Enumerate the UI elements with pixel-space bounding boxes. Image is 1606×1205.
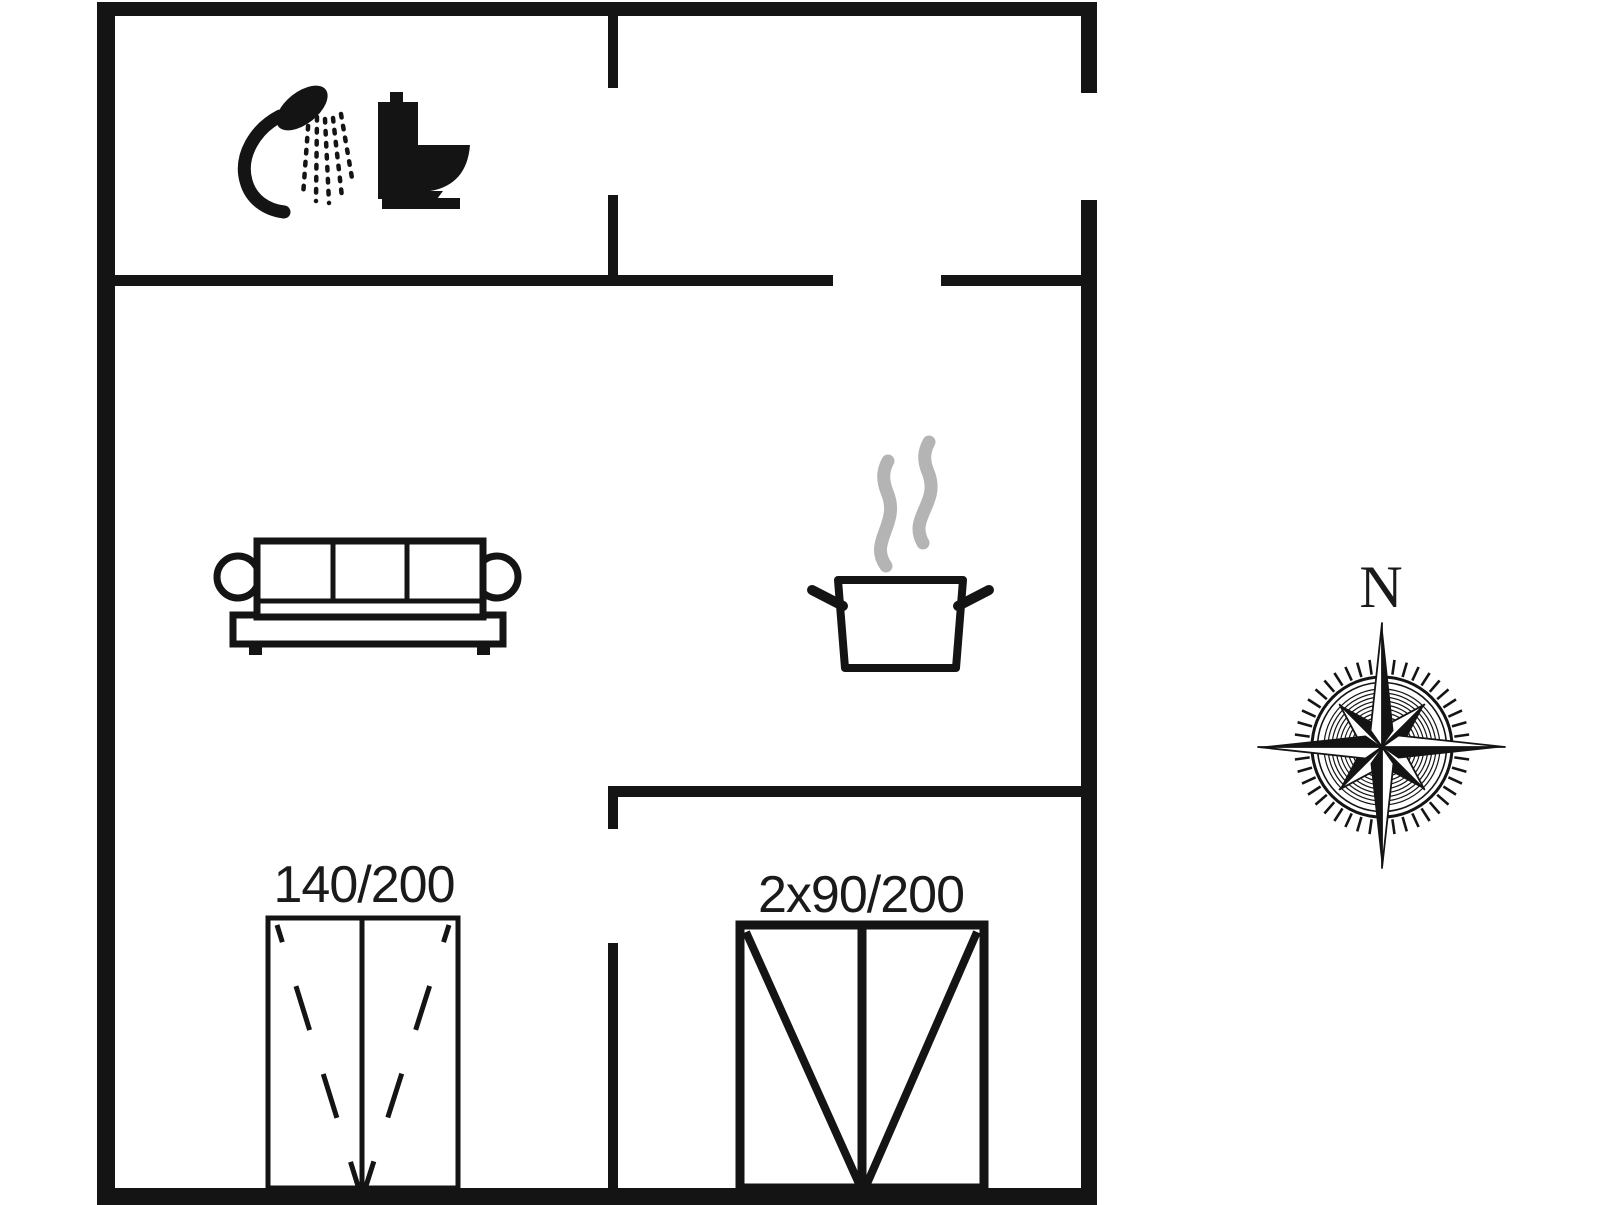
- wall-bedroom-top: [608, 786, 1082, 797]
- pot-body: [838, 580, 963, 668]
- toilet-tank: [378, 102, 418, 199]
- wall-outer-top: [97, 2, 1097, 16]
- compass-north-label: N: [1359, 554, 1402, 620]
- bed-double: 140/200: [268, 856, 458, 1188]
- shower-icon: [244, 77, 353, 212]
- bed-double-label: 140/200: [274, 856, 455, 914]
- wall-outer-left: [97, 2, 115, 1205]
- sofa-icon: [217, 541, 518, 655]
- wall-bedroom-left-upper: [608, 786, 618, 829]
- steam-icon: [880, 442, 931, 566]
- wall-bathroom-bottom: [114, 275, 833, 286]
- bed-twin: 2x90/200: [740, 866, 984, 1188]
- toilet-base: [382, 198, 460, 209]
- sofa-armrest-left: [217, 556, 259, 598]
- wall-outer-right-lower: [1081, 200, 1097, 1205]
- toilet-bowl: [418, 145, 470, 192]
- wall-bathroom-right-lower: [608, 195, 618, 286]
- compass-cardinal-points: [1258, 623, 1505, 868]
- bed-twin-label: 2x90/200: [758, 866, 964, 924]
- sofa-back: [257, 541, 483, 617]
- compass-rose: N: [1258, 554, 1505, 868]
- wall-entry-bottom: [941, 275, 1082, 286]
- toilet-pedestal: [398, 191, 443, 199]
- wall-bathroom-right-upper: [608, 14, 618, 88]
- toilet-icon: [378, 92, 470, 209]
- wall-bedroom-left-lower: [608, 943, 618, 1205]
- shower-spray: [303, 114, 353, 203]
- cooking-pot-icon: [812, 442, 989, 668]
- wall-outer-right-upper: [1081, 2, 1097, 93]
- floor-plan: 140/200 2x90/200 N: [0, 0, 1606, 1205]
- shower-hose: [244, 116, 284, 212]
